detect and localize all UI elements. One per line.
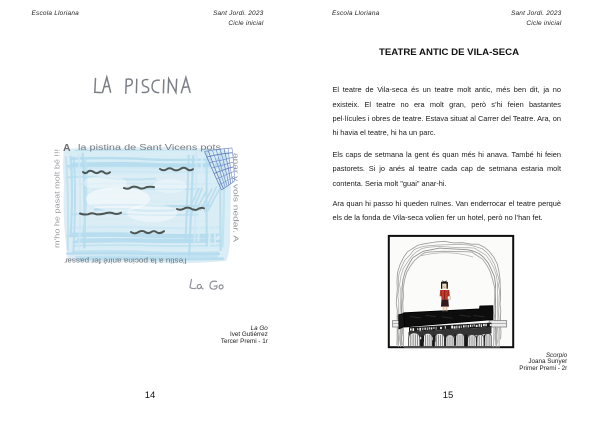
svg-text:l'estiu a la pocina aniré fer: l'estiu a la pocina aniré fer passar — [64, 257, 187, 266]
svg-text:m'ho he pasat molt bé !!!: m'ho he pasat molt bé !!! — [55, 149, 62, 248]
svg-text:A: A — [63, 142, 71, 154]
svg-text:la pistina de Sant Vicens pots: la pistina de Sant Vicens pots — [78, 143, 221, 152]
svg-text:anar y vols nedar. A: anar y vols nedar. A — [232, 153, 239, 242]
